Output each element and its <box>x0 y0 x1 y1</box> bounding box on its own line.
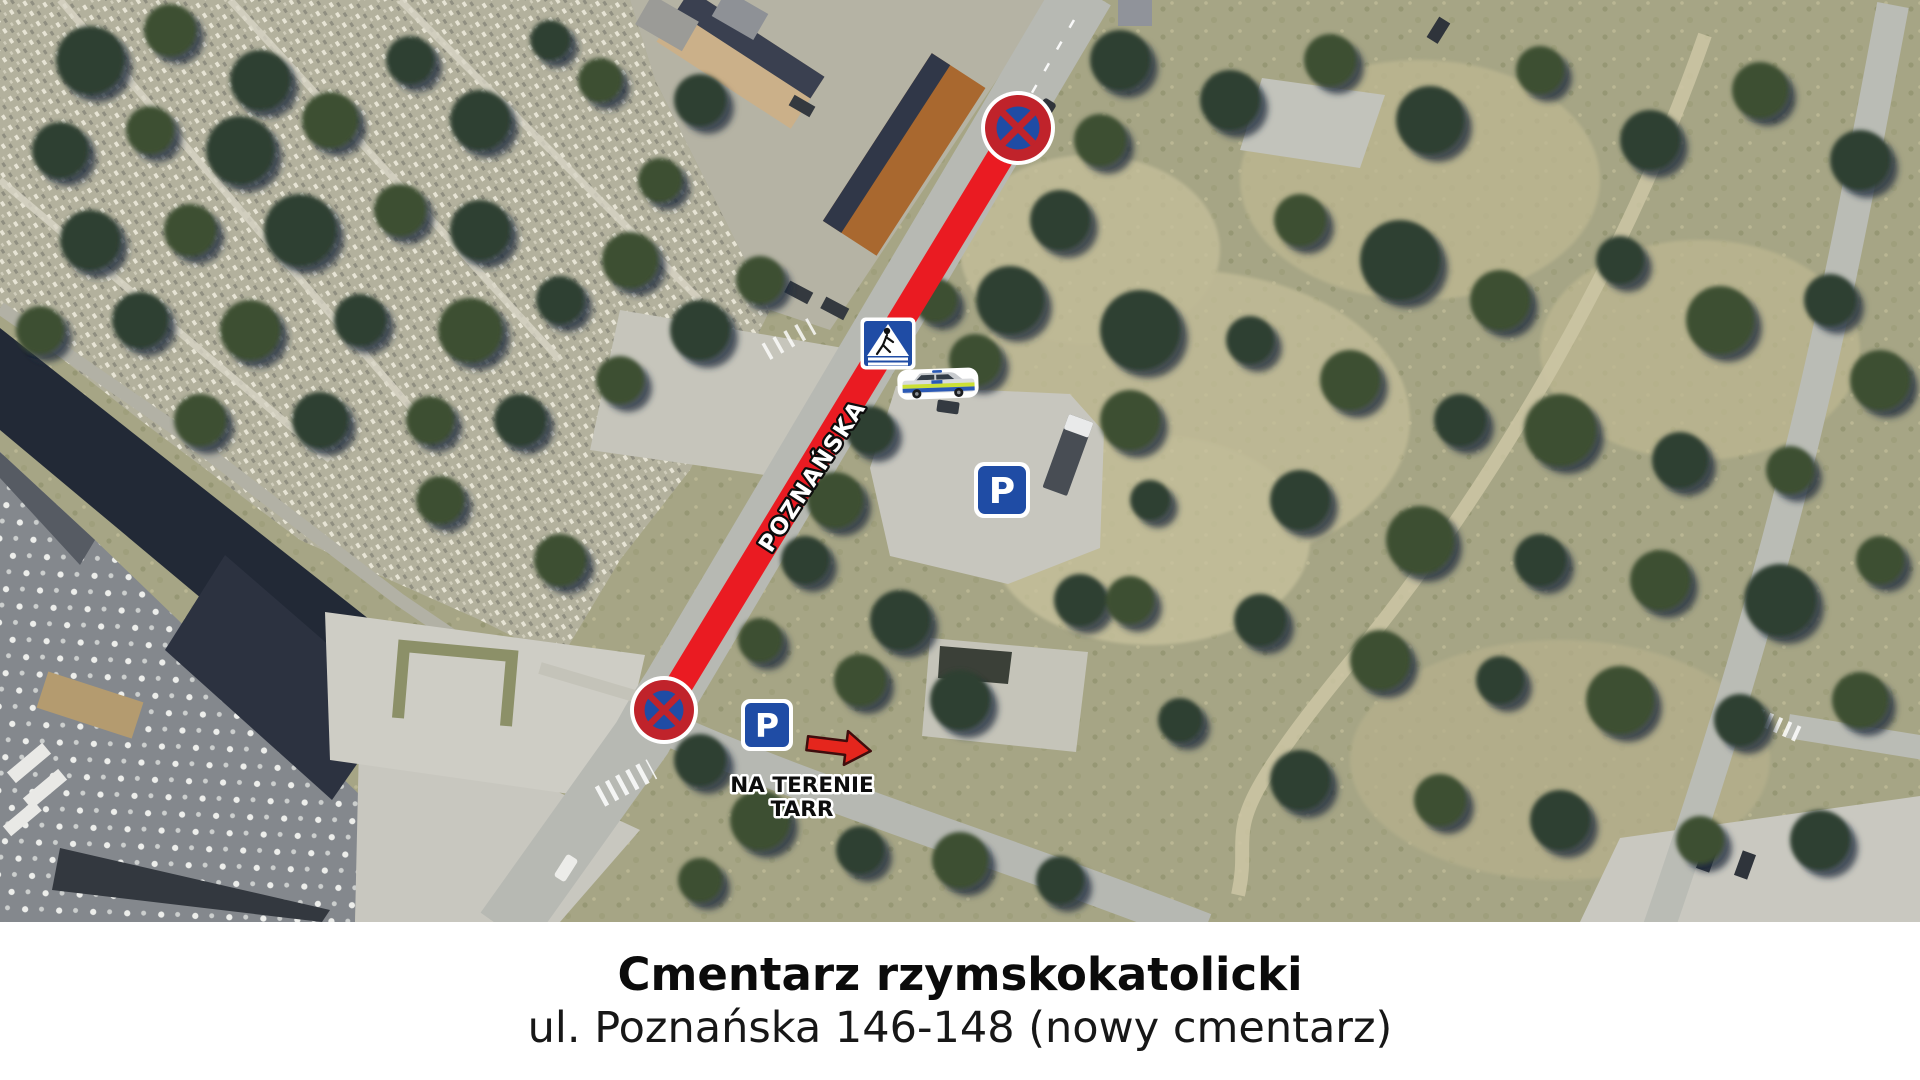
parking-sign-tarr-letter: P <box>755 706 779 745</box>
page: P P POZNAŃSKA NA TERENIE TARR Cmentarz r… <box>0 0 1920 1080</box>
caption-subtitle: ul. Poznańska 146-148 (nowy cmentarz) <box>528 1005 1393 1052</box>
caption: Cmentarz rzymskokatolicki ul. Poznańska … <box>0 922 1920 1080</box>
tarr-note-line1: NA TERENIE <box>730 773 873 798</box>
caption-title: Cmentarz rzymskokatolicki <box>617 950 1302 1000</box>
pedestrian-crossing-sign-icon <box>861 318 916 370</box>
map-image: P P POZNAŃSKA NA TERENIE TARR <box>0 0 1920 922</box>
no-stopping-sign-south-icon <box>630 676 698 744</box>
parking-sign-lot-letter: P <box>989 471 1015 512</box>
parking-sign-lot-icon: P <box>974 462 1030 518</box>
parking-sign-tarr-icon: P <box>741 699 793 751</box>
no-stopping-sign-north-icon <box>981 91 1055 165</box>
tarr-note-line2: TARR <box>771 797 834 822</box>
police-car-icon <box>897 367 979 400</box>
